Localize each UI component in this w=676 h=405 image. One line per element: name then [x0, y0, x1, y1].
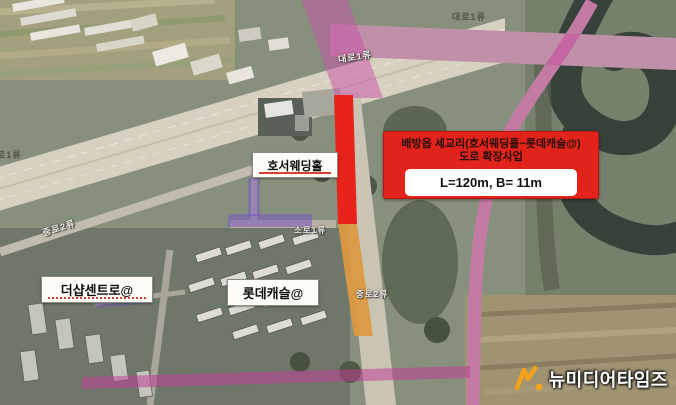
label-thesharp-centro: 더샵센트로@ [41, 276, 153, 303]
aerial-map-screenshot: 대로1류 대로1류 로1류 중로2류 소로1류 중로2류 호서웨딩홀 더샵센트로… [0, 0, 676, 405]
road-label-daero1-top: 대로1류 [452, 10, 486, 23]
red-underline [259, 172, 331, 174]
watermark: 뉴미디어타임즈 [514, 366, 668, 392]
project-dimensions: L=120m, B= 11m [405, 169, 577, 196]
road-label-jungro2-south: 중로2류 [356, 288, 388, 300]
label-lotte-castle-text: 롯데캐슬@ [243, 283, 304, 302]
newmedia-logo-icon [514, 366, 544, 392]
red-dotted-underline [48, 297, 146, 299]
project-info-box: 배방읍 세교리(호서웨딩홀~롯데캐슬@) 도로 확장사업 L=120m, B= … [383, 131, 599, 199]
label-wedding-hall-text: 호서웨딩홀 [267, 157, 322, 174]
road-label-daero1-left: 로1류 [0, 148, 22, 161]
project-title-line1: 배방읍 세교리(호서웨딩홀~롯데캐슬@) [384, 138, 598, 151]
road-label-soro1-center: 소로1류 [294, 224, 326, 236]
label-lotte-castle: 롯데캐슬@ [227, 279, 319, 306]
label-wedding-hall: 호서웨딩홀 [252, 152, 338, 178]
watermark-text: 뉴미디어타임즈 [549, 366, 668, 392]
project-title-line2: 도로 확장사업 [384, 151, 598, 164]
